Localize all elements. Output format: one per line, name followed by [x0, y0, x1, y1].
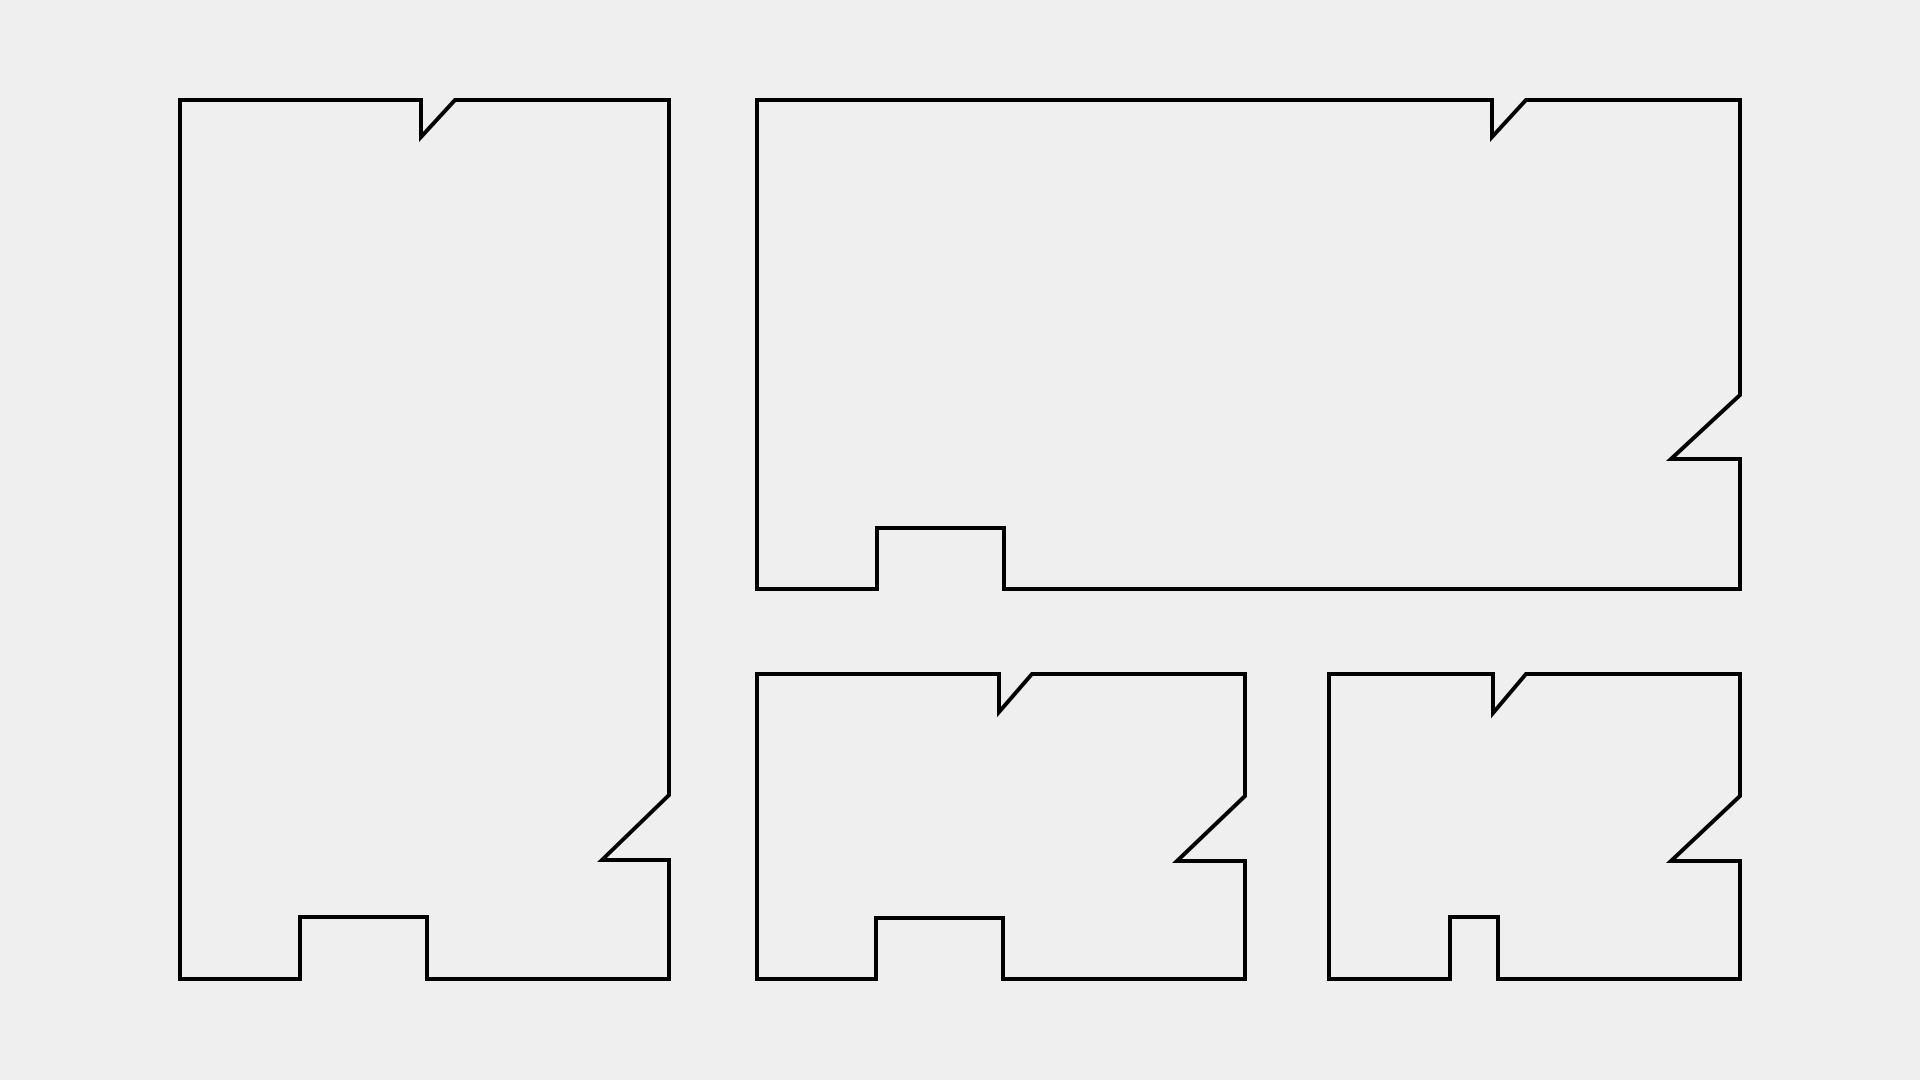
- panel-outline-wide-top-right[interactable]: [757, 100, 1740, 589]
- panel-outline-bottom-middle[interactable]: [757, 674, 1245, 979]
- panel-outline-tall-left[interactable]: [180, 100, 669, 979]
- cut-layout-canvas: [0, 0, 1920, 1080]
- parts-layer: [180, 100, 1740, 979]
- panel-outline-bottom-right[interactable]: [1329, 674, 1740, 979]
